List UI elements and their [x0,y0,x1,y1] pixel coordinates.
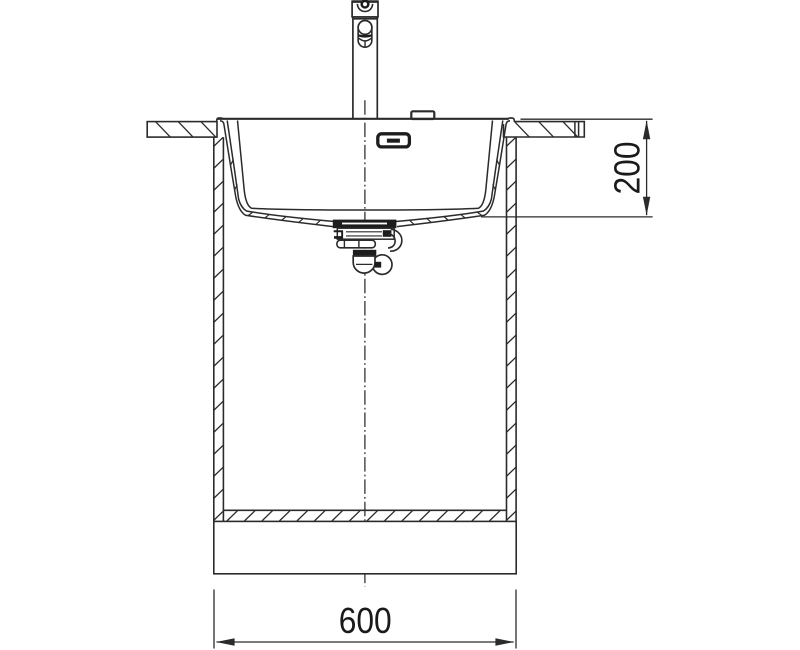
svg-text:200: 200 [607,142,648,195]
svg-text:600: 600 [339,600,392,641]
